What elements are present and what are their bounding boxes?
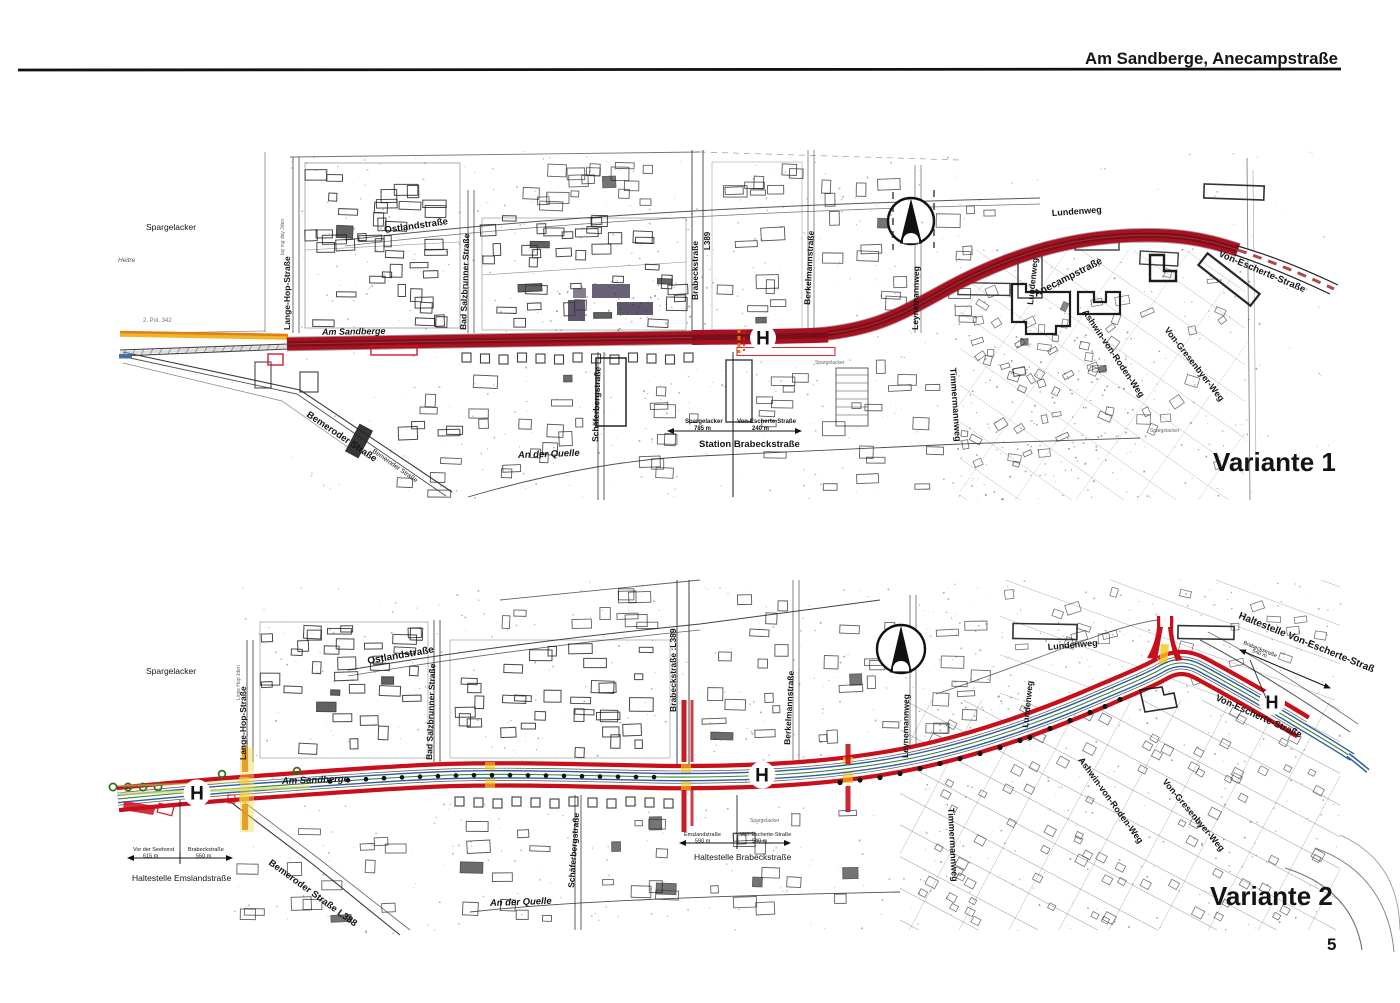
svg-text:Leynemannweg: Leynemannweg xyxy=(900,694,911,758)
svg-text:2. Pol. 342: 2. Pol. 342 xyxy=(143,318,172,324)
svg-text:Spargelacker: Spargelacker xyxy=(146,666,196,676)
svg-text:Station Brabeckstraße: Station Brabeckstraße xyxy=(699,439,800,450)
svg-text:Spargelacker: Spargelacker xyxy=(750,818,780,824)
svg-text:785 m: 785 m xyxy=(694,426,711,432)
svg-text:Spargelacker: Spargelacker xyxy=(1150,428,1180,434)
svg-text:H: H xyxy=(756,329,770,350)
svg-text:Spargelacker: Spargelacker xyxy=(146,222,196,232)
svg-text:Am Sandberge, Anecampstraße: Am Sandberge, Anecampstraße xyxy=(1085,49,1338,68)
svg-text:H: H xyxy=(1266,693,1279,713)
svg-text:Von-Escherte-Straße: Von-Escherte-Straße xyxy=(737,419,797,425)
svg-text:Brabeckstraße: Brabeckstraße xyxy=(188,847,224,853)
svg-text:L389: L389 xyxy=(703,231,712,250)
svg-text:615 m: 615 m xyxy=(143,854,159,860)
svg-text:Emslandstraße: Emslandstraße xyxy=(684,832,721,838)
svg-text:An der Quelle: An der Quelle xyxy=(489,896,553,909)
svg-text:550 m: 550 m xyxy=(196,854,212,860)
svg-text:Brabeckstraße: Brabeckstraße xyxy=(690,241,700,300)
svg-text:Lange-Hop-Straße: Lange-Hop-Straße xyxy=(282,256,292,330)
svg-text:540 m: 540 m xyxy=(752,839,768,845)
svg-text:Variante 2: Variante 2 xyxy=(1210,881,1333,911)
svg-text:Haltestelle Brabeckstraße: Haltestelle Brabeckstraße xyxy=(694,852,792,862)
svg-text:590 m: 590 m xyxy=(695,839,711,845)
svg-text:Heitre: Heitre xyxy=(118,257,136,264)
svg-text:Spargelacker: Spargelacker xyxy=(685,419,723,425)
svg-text:Von-Escherte-Straße: Von-Escherte-Straße xyxy=(740,832,791,838)
svg-text:Am Sandberge: Am Sandberge xyxy=(321,326,386,337)
svg-text:H: H xyxy=(190,784,204,805)
svg-text:An der Quelle: An der Quelle xyxy=(517,448,581,461)
svg-text:H: H xyxy=(755,766,769,787)
svg-text:Leynemannweg: Leynemannweg xyxy=(910,266,921,330)
svg-text:Haltestelle Emslandstraße: Haltestelle Emslandstraße xyxy=(132,873,231,883)
svg-text:Variante 1: Variante 1 xyxy=(1213,447,1336,477)
svg-text:Linke Hop Jden: Linke Hop Jden xyxy=(236,665,242,700)
svg-text:240 m: 240 m xyxy=(752,426,769,432)
svg-text:Vor der Seehorst: Vor der Seehorst xyxy=(133,847,175,853)
svg-text:Brabeckstraße :L389: Brabeckstraße :L389 xyxy=(668,628,678,712)
svg-text:Spargelacker: Spargelacker xyxy=(815,360,845,366)
svg-text:5: 5 xyxy=(1327,935,1336,954)
svg-text:lay ing day Jden: lay ing day Jden xyxy=(280,219,286,255)
